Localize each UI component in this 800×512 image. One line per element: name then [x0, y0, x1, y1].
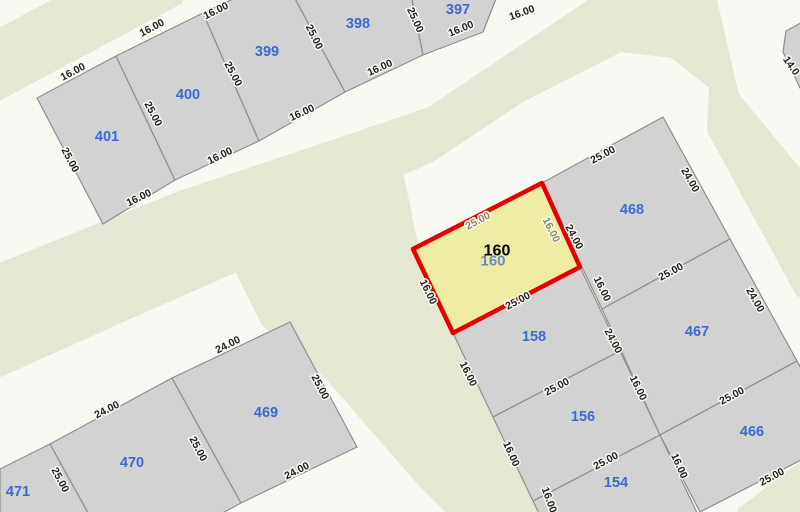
parcel-label-398: 398: [346, 16, 370, 32]
map-svg[interactable]: 16.0016.0016.0025.0025.0025.0025.0025.00…: [0, 0, 800, 512]
parcel-label-468: 468: [620, 202, 644, 218]
parcel-label-154: 154: [604, 475, 628, 491]
parcel-map-canvas[interactable]: 16.0016.0016.0025.0025.0025.0025.0025.00…: [0, 0, 800, 512]
parcel-label-469: 469: [254, 405, 278, 421]
parcel-label-401: 401: [95, 129, 119, 145]
parcel-label-160-selected: 160: [484, 243, 511, 260]
parcel-label-467: 467: [685, 324, 709, 340]
parcel-label-158: 158: [522, 329, 546, 345]
parcel-label-466: 466: [740, 424, 764, 440]
parcel-label-156: 156: [571, 409, 595, 425]
parcel-label-400: 400: [176, 87, 200, 103]
parcel-label-397: 397: [446, 2, 470, 18]
parcel-label-471: 471: [6, 484, 30, 500]
parcel-label-470: 470: [120, 455, 144, 471]
parcel-label-399: 399: [255, 44, 279, 60]
